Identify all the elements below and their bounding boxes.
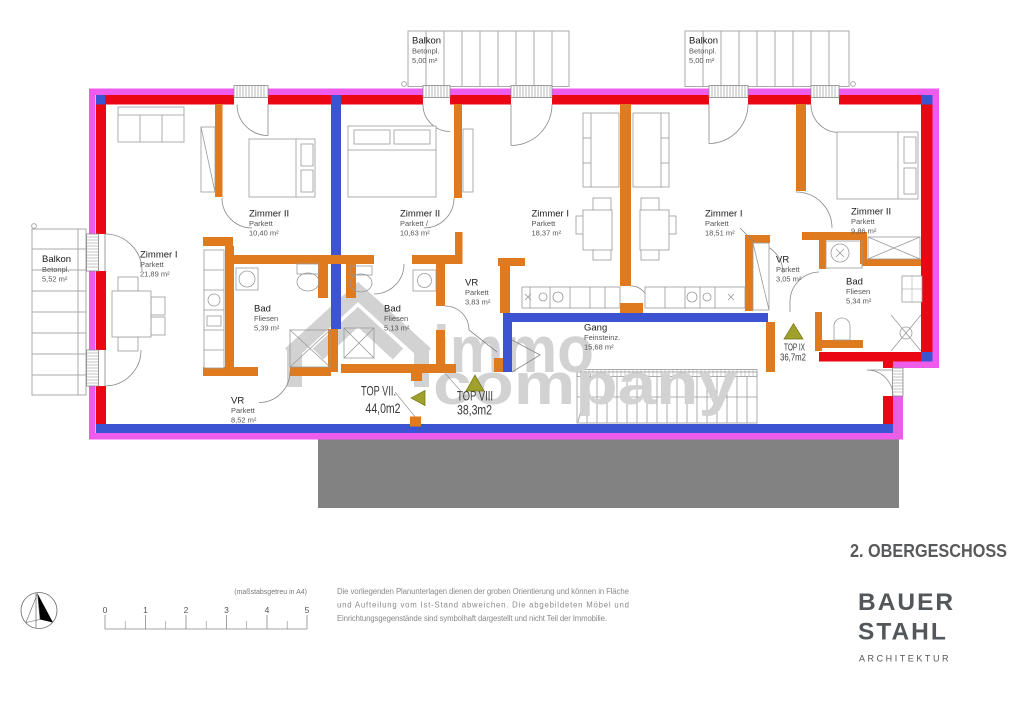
svg-text:3,05 m²: 3,05 m² <box>776 275 802 284</box>
svg-text:3,83 m²: 3,83 m² <box>465 298 491 307</box>
svg-text:VR: VR <box>231 396 244 407</box>
svg-text:Parkett /: Parkett / <box>400 219 429 228</box>
svg-text:Bad: Bad <box>254 304 271 315</box>
svg-text:15,68 m²: 15,68 m² <box>584 343 614 352</box>
svg-text:Parkett: Parkett <box>249 219 274 228</box>
svg-text:18,51 m²: 18,51 m² <box>705 229 735 238</box>
svg-text:Parkett: Parkett <box>776 265 801 274</box>
svg-text:2. OBERGESCHOSS: 2. OBERGESCHOSS <box>850 541 1007 561</box>
svg-text:Betonpl.: Betonpl. <box>42 265 70 274</box>
svg-text:8,52 m²: 8,52 m² <box>231 416 257 425</box>
svg-text:ARCHITEKTUR: ARCHITEKTUR <box>859 654 951 664</box>
svg-text:(maßstabsgetreu in A4): (maßstabsgetreu in A4) <box>234 589 307 596</box>
svg-text:5,00 m²: 5,00 m² <box>412 56 438 65</box>
svg-text:Parkett: Parkett <box>532 219 557 228</box>
svg-text:5: 5 <box>305 605 310 615</box>
svg-text:Balkon: Balkon <box>412 36 441 47</box>
svg-text:Betonpl.: Betonpl. <box>412 47 440 56</box>
svg-text:21,89 m²: 21,89 m² <box>140 270 170 279</box>
svg-text:2: 2 <box>184 605 189 615</box>
svg-text:STAHL: STAHL <box>858 619 948 646</box>
svg-text:18,37 m²: 18,37 m² <box>532 229 562 238</box>
svg-text:10,40 m²: 10,40 m² <box>249 229 279 238</box>
svg-text:Fliesen: Fliesen <box>846 287 870 296</box>
svg-text:3: 3 <box>224 605 229 615</box>
svg-text:Bad: Bad <box>846 277 863 288</box>
svg-text:Einrichtungsgegenstände sind s: Einrichtungsgegenstände sind symbolhaft … <box>337 614 607 623</box>
svg-text:44,0m2: 44,0m2 <box>366 400 401 416</box>
svg-text:4: 4 <box>265 605 270 615</box>
svg-text:Balkon: Balkon <box>42 254 71 265</box>
svg-text:9,86 m²: 9,86 m² <box>851 227 877 236</box>
svg-text:Zimmer II: Zimmer II <box>851 207 891 218</box>
svg-text:5,13 m²: 5,13 m² <box>384 324 410 333</box>
svg-text:VR: VR <box>465 278 478 289</box>
svg-text:Die vorliegenden Planunterlage: Die vorliegenden Planunterlagen dienen d… <box>337 587 629 596</box>
svg-text:Fliesen: Fliesen <box>384 314 408 323</box>
svg-text:5,00 m²: 5,00 m² <box>689 56 715 65</box>
svg-text:1: 1 <box>143 605 148 615</box>
svg-text:36,7m2: 36,7m2 <box>780 352 806 364</box>
svg-text:Bad: Bad <box>384 304 401 315</box>
svg-text:5,52 m²: 5,52 m² <box>42 275 68 284</box>
svg-text:Zimmer I: Zimmer I <box>532 209 569 220</box>
svg-text:Parkett: Parkett <box>231 406 256 415</box>
svg-text:0: 0 <box>103 605 108 615</box>
svg-text:Betonpl.: Betonpl. <box>689 47 717 56</box>
svg-text:Parkett: Parkett <box>705 219 730 228</box>
svg-text:TOP VII.: TOP VII. <box>361 383 396 399</box>
svg-text:Zimmer I: Zimmer I <box>705 209 742 220</box>
svg-text:Balkon: Balkon <box>689 36 718 47</box>
svg-text:Parkett: Parkett <box>140 260 165 269</box>
svg-text:Gang: Gang <box>584 323 607 334</box>
svg-text:Zimmer II: Zimmer II <box>400 209 440 220</box>
svg-text:BAUER: BAUER <box>858 589 955 616</box>
svg-text:VR: VR <box>776 255 789 266</box>
svg-text:Zimmer II: Zimmer II <box>249 209 289 220</box>
svg-text:und Aufteilung vom Ist-Stand a: und Aufteilung vom Ist-Stand abweichen. … <box>337 601 629 610</box>
svg-text:Feinsteinz.: Feinsteinz. <box>584 333 620 342</box>
svg-text:Parkett: Parkett <box>851 217 876 226</box>
svg-text:Parkett: Parkett <box>465 288 490 297</box>
svg-text:5,39 m²: 5,39 m² <box>254 324 280 333</box>
svg-text:5,34 m²: 5,34 m² <box>846 297 872 306</box>
svg-text:38,3m2: 38,3m2 <box>457 402 492 418</box>
svg-text:Zimmer I: Zimmer I <box>140 250 177 261</box>
svg-text:10,63 m²: 10,63 m² <box>400 229 430 238</box>
svg-text:Fliesen: Fliesen <box>254 314 278 323</box>
